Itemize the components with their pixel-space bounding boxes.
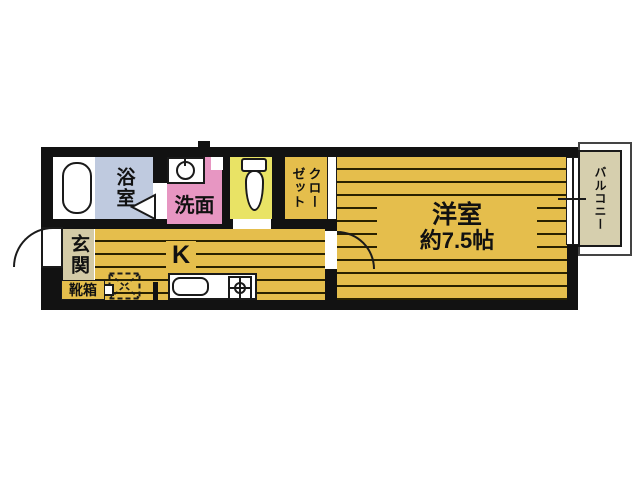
shoebox: 靴箱 [61,280,105,300]
balcony-label: バルコニー [594,166,606,231]
closet-sliding-door [327,157,337,219]
western-room-label: 洋室 [432,202,482,228]
washroom-wall-notch [211,157,223,170]
washing-machine-power-tick [184,158,186,166]
wall-vent-bump [198,141,210,148]
counter-wall-stub [153,282,158,300]
shoebox-label: 靴箱 [69,283,97,298]
stove-burner-icon [228,276,252,300]
western-room-size: 約7.5帖 [420,229,495,252]
closet-label-right: クロー [308,167,321,209]
window-pane-divider [572,158,574,244]
entry-door-swing [13,227,53,267]
floor-plan: 浴室 洗面 ゼット クロー 洋室 約7.5帖 K [0,0,640,480]
entrance-label: 玄関 [69,234,88,276]
western-door-opening [325,231,337,269]
kitchen-label-box: K [166,241,196,269]
kitchen-label: K [172,242,190,268]
room-entrance: 玄関 [63,229,95,280]
closet-label-left: ゼット [292,167,305,209]
stove-circle [234,282,246,294]
sliding-window-icon [566,157,579,245]
western-room-label-box: 洋室 約7.5帖 [377,201,537,253]
washroom-label: 洗面 [175,196,215,217]
bathtub-icon [62,162,92,214]
toilet-door-opening [233,219,271,229]
bath-door-swing-icon [129,192,157,222]
washroom-label-box: 洗面 [167,192,222,220]
window-center-tick [558,198,586,200]
sink-icon [172,277,209,296]
room-closet: ゼット クロー [285,157,327,219]
